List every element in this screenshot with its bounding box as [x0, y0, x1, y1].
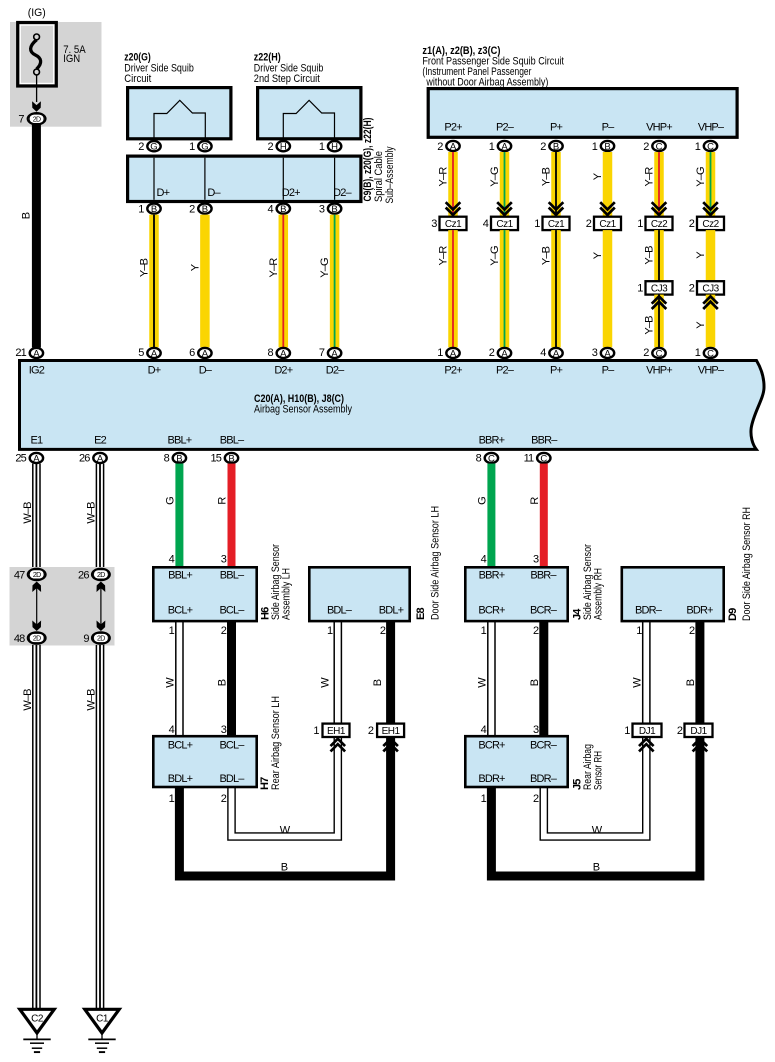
svg-text:B: B	[217, 679, 229, 686]
svg-text:2: 2	[677, 725, 683, 737]
svg-text:P2+: P2+	[444, 365, 462, 377]
svg-text:B: B	[372, 679, 384, 686]
svg-text:1: 1	[695, 141, 701, 153]
svg-text:Y: Y	[695, 251, 707, 259]
svg-text:5: 5	[138, 347, 144, 359]
svg-text:1: 1	[624, 725, 630, 737]
svg-text:15: 15	[210, 452, 221, 464]
svg-text:B: B	[21, 212, 33, 219]
svg-text:A: A	[151, 348, 158, 359]
svg-text:8: 8	[268, 347, 274, 359]
svg-text:2D: 2D	[97, 636, 105, 643]
svg-text:BBL–: BBL–	[220, 435, 245, 447]
svg-text:26: 26	[79, 452, 90, 464]
svg-text:G: G	[201, 142, 208, 153]
svg-text:B: B	[202, 204, 208, 215]
svg-text:P2+: P2+	[444, 122, 462, 134]
svg-text:4: 4	[268, 203, 274, 215]
svg-text:2: 2	[540, 141, 546, 153]
svg-text:A: A	[33, 348, 40, 359]
svg-text:BBR–: BBR–	[531, 435, 558, 447]
svg-text:1: 1	[169, 793, 175, 805]
svg-text:1: 1	[481, 793, 487, 805]
svg-text:2: 2	[643, 141, 649, 153]
svg-text:BDR–: BDR–	[635, 605, 663, 617]
svg-text:3: 3	[221, 724, 227, 736]
svg-text:1: 1	[592, 141, 598, 153]
svg-text:A: A	[450, 348, 457, 359]
svg-text:C: C	[488, 453, 495, 464]
svg-text:A: A	[97, 453, 104, 464]
svg-text:BDL+: BDL+	[168, 773, 193, 785]
svg-text:without Door Airbag Assembly): without Door Airbag Assembly)	[426, 77, 549, 89]
svg-text:W–B: W–B	[22, 689, 34, 711]
svg-text:D2–: D2–	[326, 365, 345, 377]
svg-text:P–: P–	[602, 365, 615, 377]
svg-text:BCL+: BCL+	[168, 740, 193, 752]
svg-text:W–B: W–B	[86, 689, 98, 711]
svg-text:1: 1	[481, 625, 487, 637]
svg-text:R: R	[217, 497, 229, 505]
svg-text:BCL+: BCL+	[168, 605, 193, 617]
svg-text:Y–G: Y–G	[489, 246, 501, 266]
svg-text:2: 2	[533, 793, 539, 805]
svg-text:25: 25	[15, 452, 26, 464]
svg-text:2D: 2D	[33, 116, 41, 123]
svg-text:B: B	[151, 204, 157, 215]
svg-text:C2: C2	[31, 1013, 44, 1024]
svg-text:P+: P+	[550, 365, 562, 377]
svg-text:47: 47	[14, 569, 25, 581]
svg-text:2: 2	[643, 347, 649, 359]
svg-text:Sub–Assembly: Sub–Assembly	[384, 146, 396, 203]
svg-text:4: 4	[483, 218, 489, 230]
svg-text:48: 48	[14, 633, 25, 645]
svg-text:2: 2	[489, 347, 495, 359]
svg-text:3: 3	[431, 218, 437, 230]
svg-text:D9: D9	[727, 608, 739, 621]
svg-text:3: 3	[533, 724, 539, 736]
svg-text:H: H	[280, 142, 287, 153]
svg-text:7: 7	[18, 114, 24, 126]
svg-text:BDL–: BDL–	[327, 605, 353, 617]
svg-text:VHP–: VHP–	[698, 122, 725, 134]
svg-text:1: 1	[327, 625, 333, 637]
svg-text:A: A	[202, 348, 209, 359]
svg-text:1: 1	[313, 725, 319, 737]
svg-text:B: B	[280, 204, 286, 215]
svg-text:D+: D+	[148, 365, 161, 377]
svg-text:BCR+: BCR+	[478, 605, 505, 617]
svg-text:D2–: D2–	[333, 187, 352, 199]
svg-text:2D: 2D	[33, 636, 41, 643]
svg-text:Cz1: Cz1	[599, 219, 616, 230]
svg-text:2D: 2D	[97, 572, 105, 579]
svg-text:A: A	[553, 348, 560, 359]
svg-text:2: 2	[368, 725, 374, 737]
svg-text:Cz1: Cz1	[548, 219, 565, 230]
svg-text:C: C	[656, 141, 663, 152]
svg-text:G: G	[164, 497, 176, 505]
svg-text:D2+: D2+	[274, 365, 292, 377]
svg-text:Assembly RH: Assembly RH	[593, 568, 605, 620]
svg-text:2: 2	[586, 218, 592, 230]
svg-text:B: B	[593, 862, 600, 874]
svg-text:BBR+: BBR+	[479, 435, 505, 447]
svg-text:1: 1	[169, 625, 175, 637]
svg-text:VHP+: VHP+	[646, 122, 672, 134]
svg-text:B: B	[331, 204, 337, 215]
svg-text:Door Side Airbag Sensor RH: Door Side Airbag Sensor RH	[741, 507, 753, 621]
svg-text:W: W	[164, 677, 176, 688]
svg-text:P2–: P2–	[496, 122, 515, 134]
svg-text:2D: 2D	[33, 572, 41, 579]
svg-text:D–: D–	[207, 187, 221, 199]
svg-text:BDR+: BDR+	[478, 773, 505, 785]
svg-text:BDR+: BDR+	[686, 605, 713, 617]
svg-text:BDL+: BDL+	[379, 605, 404, 617]
svg-text:2: 2	[380, 625, 386, 637]
svg-text:Y–B: Y–B	[139, 258, 151, 277]
svg-text:26: 26	[78, 569, 89, 581]
svg-text:1: 1	[489, 141, 495, 153]
svg-text:A: A	[450, 141, 457, 152]
svg-text:Y: Y	[592, 172, 604, 180]
svg-text:P–: P–	[602, 122, 615, 134]
svg-text:P2–: P2–	[496, 365, 515, 377]
svg-text:Door Side Airbag Sensor LH: Door Side Airbag Sensor LH	[430, 506, 442, 620]
svg-text:1: 1	[637, 283, 643, 295]
svg-text:B: B	[176, 453, 182, 464]
svg-text:Y–B: Y–B	[644, 246, 656, 265]
svg-text:E8: E8	[415, 608, 427, 620]
svg-text:3: 3	[592, 347, 598, 359]
svg-text:2: 2	[533, 625, 539, 637]
svg-text:2: 2	[221, 625, 227, 637]
svg-text:6: 6	[189, 347, 195, 359]
svg-text:1: 1	[319, 141, 325, 153]
svg-text:4: 4	[481, 554, 487, 566]
svg-text:IGN: IGN	[63, 53, 80, 65]
svg-text:BCL–: BCL–	[219, 605, 245, 617]
svg-text:B: B	[604, 141, 610, 152]
svg-text:A: A	[280, 348, 287, 359]
svg-text:B: B	[553, 141, 559, 152]
svg-text:C1: C1	[96, 1013, 109, 1024]
svg-text:C: C	[656, 348, 663, 359]
svg-text:Cz1: Cz1	[445, 219, 462, 230]
svg-text:Y–B: Y–B	[541, 167, 553, 186]
svg-text:8: 8	[164, 452, 170, 464]
svg-text:W–B: W–B	[86, 502, 98, 524]
svg-text:EH1: EH1	[327, 726, 346, 737]
svg-text:BBL–: BBL–	[220, 570, 245, 582]
svg-text:Y–G: Y–G	[489, 167, 501, 187]
svg-text:Assembly LH: Assembly LH	[281, 568, 293, 620]
svg-text:Rear Airbag Sensor LH: Rear Airbag Sensor LH	[270, 696, 282, 790]
svg-text:4: 4	[481, 724, 487, 736]
svg-text:A: A	[331, 348, 338, 359]
svg-text:BBL+: BBL+	[168, 570, 192, 582]
svg-text:BCR–: BCR–	[530, 605, 558, 617]
svg-text:A: A	[604, 348, 611, 359]
svg-text:BCL–: BCL–	[219, 740, 245, 752]
svg-text:W: W	[320, 677, 332, 688]
svg-text:E1: E1	[31, 435, 43, 447]
svg-text:Y: Y	[695, 321, 707, 329]
svg-text:BBR–: BBR–	[530, 570, 557, 582]
svg-text:Y–B: Y–B	[541, 246, 553, 265]
svg-text:2nd Step Circuit: 2nd Step Circuit	[254, 73, 320, 85]
svg-text:3: 3	[533, 554, 539, 566]
svg-text:CJ3: CJ3	[651, 284, 668, 295]
svg-text:1: 1	[636, 625, 642, 637]
svg-text:A: A	[33, 453, 40, 464]
svg-text:G: G	[150, 142, 157, 153]
svg-text:E2: E2	[94, 435, 106, 447]
svg-text:BBR+: BBR+	[479, 570, 505, 582]
svg-text:B: B	[529, 679, 541, 686]
svg-text:2: 2	[138, 141, 144, 153]
svg-text:A: A	[501, 348, 508, 359]
svg-text:Sensor RH: Sensor RH	[593, 751, 605, 790]
svg-text:BCR–: BCR–	[530, 740, 558, 752]
svg-text:1: 1	[695, 347, 701, 359]
svg-text:Y–R: Y–R	[644, 167, 656, 187]
svg-text:21: 21	[15, 347, 26, 359]
svg-text:W: W	[280, 825, 291, 837]
svg-text:VHP+: VHP+	[646, 365, 672, 377]
svg-text:P+: P+	[550, 122, 562, 134]
svg-text:2: 2	[189, 203, 195, 215]
svg-text:W: W	[592, 825, 603, 837]
svg-text:Y–R: Y–R	[438, 246, 450, 266]
svg-text:G: G	[476, 497, 488, 505]
svg-text:DJ1: DJ1	[690, 726, 707, 737]
svg-text:BBL+: BBL+	[167, 435, 191, 447]
svg-text:A: A	[501, 141, 508, 152]
svg-text:W: W	[631, 677, 643, 688]
svg-text:EH1: EH1	[382, 726, 401, 737]
svg-text:2: 2	[437, 141, 443, 153]
svg-text:9: 9	[83, 633, 89, 645]
svg-text:Circuit: Circuit	[124, 73, 151, 85]
svg-text:CJ3: CJ3	[702, 284, 719, 295]
svg-text:Cz2: Cz2	[651, 219, 668, 230]
svg-text:Y: Y	[592, 251, 604, 259]
svg-text:4: 4	[169, 554, 175, 566]
svg-text:3: 3	[221, 554, 227, 566]
svg-text:4: 4	[540, 347, 546, 359]
svg-text:D–: D–	[199, 365, 213, 377]
svg-text:W–B: W–B	[22, 502, 34, 524]
svg-text:H: H	[331, 142, 338, 153]
svg-text:11: 11	[524, 452, 534, 464]
svg-text:BDL–: BDL–	[219, 773, 245, 785]
svg-text:2: 2	[268, 141, 274, 153]
svg-text:BDR–: BDR–	[530, 773, 558, 785]
svg-text:1: 1	[534, 218, 540, 230]
svg-text:B: B	[281, 862, 288, 874]
svg-text:C: C	[707, 348, 714, 359]
svg-text:Cz1: Cz1	[496, 219, 513, 230]
svg-text:DJ1: DJ1	[639, 726, 656, 737]
svg-text:2: 2	[689, 218, 695, 230]
svg-text:2: 2	[689, 283, 695, 295]
svg-text:(IG): (IG)	[28, 7, 46, 19]
svg-text:Y: Y	[189, 263, 201, 271]
svg-text:2: 2	[221, 793, 227, 805]
svg-text:Y–R: Y–R	[438, 167, 450, 187]
svg-text:4: 4	[169, 724, 175, 736]
svg-text:BCR+: BCR+	[478, 740, 505, 752]
svg-text:D+: D+	[157, 187, 170, 199]
svg-text:8: 8	[476, 452, 482, 464]
svg-text:Y–R: Y–R	[268, 258, 280, 278]
svg-text:1: 1	[637, 218, 643, 230]
svg-text:Y–G: Y–G	[319, 258, 331, 278]
svg-text:IG2: IG2	[29, 365, 45, 377]
svg-text:B: B	[228, 453, 234, 464]
svg-text:C: C	[707, 141, 714, 152]
svg-text:1: 1	[138, 203, 144, 215]
svg-text:D2+: D2+	[282, 187, 300, 199]
svg-text:R: R	[529, 497, 541, 505]
svg-text:1: 1	[437, 347, 443, 359]
svg-text:Airbag Sensor Assembly: Airbag Sensor Assembly	[254, 404, 352, 416]
svg-text:2: 2	[689, 625, 695, 637]
svg-text:B: B	[685, 679, 697, 686]
svg-text:VHP–: VHP–	[698, 365, 725, 377]
svg-text:C: C	[540, 453, 547, 464]
svg-text:7: 7	[319, 347, 325, 359]
svg-text:Cz2: Cz2	[702, 219, 719, 230]
svg-text:3: 3	[319, 203, 325, 215]
svg-text:Y–G: Y–G	[695, 167, 707, 187]
svg-text:W: W	[476, 677, 488, 688]
svg-text:1: 1	[189, 141, 195, 153]
svg-text:Y–B: Y–B	[644, 316, 656, 335]
